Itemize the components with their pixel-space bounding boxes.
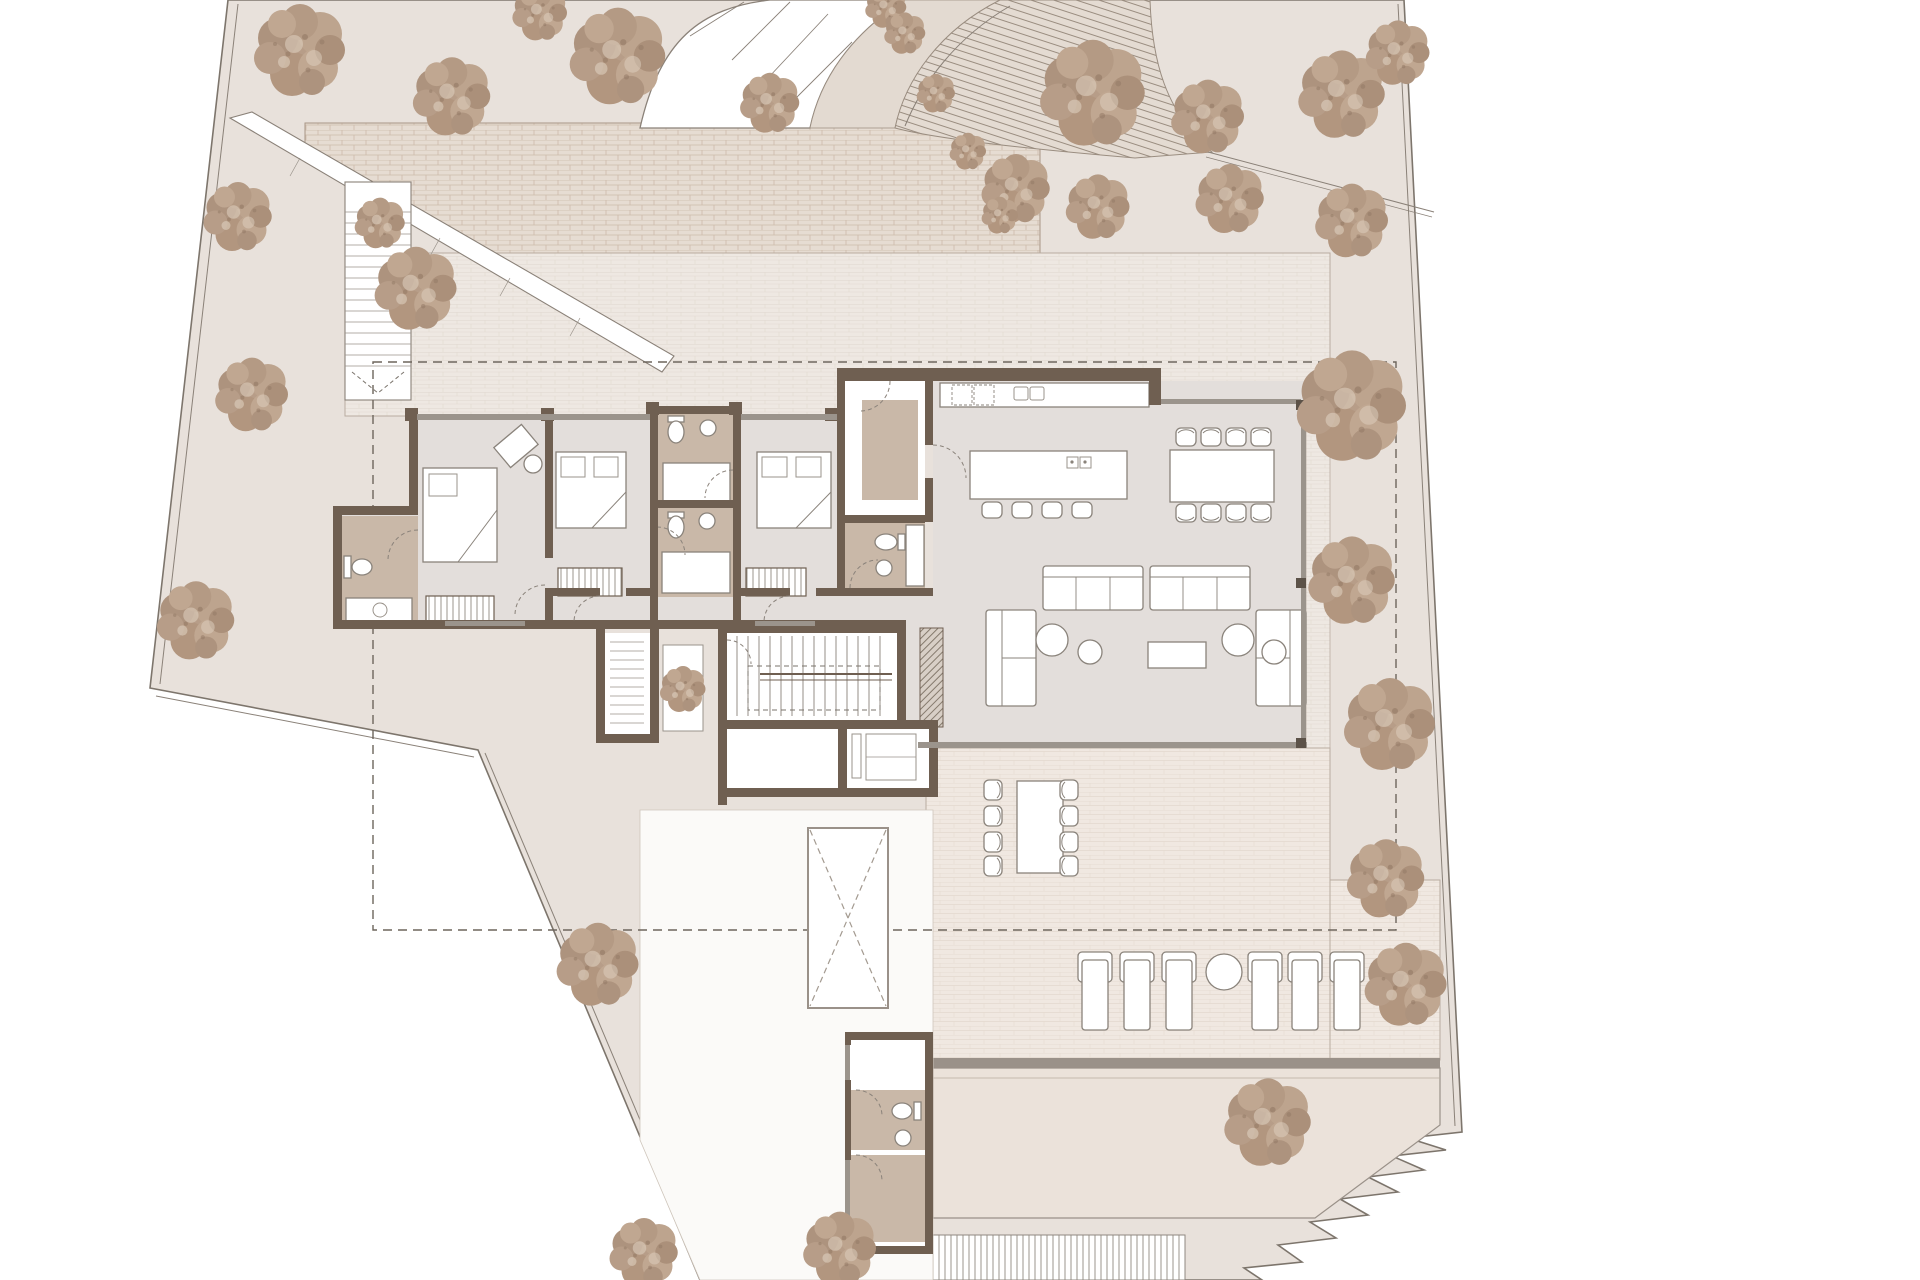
- coffee-table: [1148, 642, 1206, 668]
- pool-house-storage: [849, 1040, 925, 1085]
- sun-lounger: [1288, 952, 1322, 1030]
- column: [1296, 578, 1306, 588]
- island-stool: [1072, 502, 1092, 518]
- window-band: [741, 414, 837, 420]
- closet: [906, 525, 924, 586]
- outdoor-chair: [984, 832, 1002, 852]
- window-band: [1161, 399, 1301, 404]
- bathroom-a: [657, 412, 733, 504]
- kitchen-island: [970, 451, 1127, 499]
- window-band: [445, 621, 525, 626]
- equipment: [852, 734, 861, 778]
- dining-table: [1170, 450, 1274, 502]
- sink-icon: [700, 420, 716, 436]
- bedroom-2: [556, 452, 626, 596]
- toilet-tank: [898, 534, 905, 550]
- shower: [662, 552, 730, 593]
- pouf: [1036, 624, 1068, 656]
- toilet-tank: [914, 1102, 921, 1120]
- wardrobe: [426, 596, 494, 624]
- entry-mat: [862, 400, 918, 500]
- terrace-edge-band: [926, 1058, 1440, 1068]
- fireplace-hatch: [920, 628, 943, 727]
- master-bathroom: [341, 516, 418, 625]
- dining-chair: [1201, 504, 1221, 522]
- toilet-icon: [875, 534, 897, 550]
- utility-room: [847, 729, 929, 788]
- sun-lounger: [1248, 952, 1282, 1030]
- outdoor-chair: [984, 780, 1002, 800]
- chaise-longue: [986, 610, 1036, 706]
- storage-room: [727, 729, 838, 788]
- bed: [556, 452, 626, 528]
- shower: [663, 463, 730, 502]
- outdoor-chair: [984, 856, 1002, 876]
- window-band: [918, 742, 1307, 748]
- dining-chair: [1176, 504, 1196, 522]
- desk-chair: [524, 455, 542, 473]
- kitchen: [940, 383, 1149, 518]
- outdoor-chair: [984, 806, 1002, 826]
- outdoor-chair: [1060, 806, 1078, 826]
- window-band: [755, 621, 815, 626]
- sink-icon: [1014, 387, 1028, 400]
- pillow: [429, 474, 457, 496]
- bed: [757, 452, 831, 528]
- sun-lounger: [1120, 952, 1154, 1030]
- window-band: [1301, 404, 1306, 744]
- pillow: [561, 457, 585, 477]
- floor-plan-drawing: [0, 0, 1920, 1280]
- window: [845, 1045, 850, 1080]
- outdoor-chair: [1060, 856, 1078, 876]
- window-band: [417, 414, 650, 420]
- light-shaft: [808, 828, 888, 1008]
- sun-lounger: [1330, 952, 1364, 1030]
- toilet-icon: [352, 559, 372, 575]
- island-stool: [1042, 502, 1062, 518]
- sink-icon: [373, 603, 387, 617]
- pouf: [1262, 640, 1286, 664]
- pillow: [796, 457, 821, 477]
- sink-icon: [895, 1130, 911, 1146]
- tree: [610, 1218, 678, 1280]
- sink-icon: [699, 513, 715, 529]
- sink-icon: [876, 560, 892, 576]
- toilet-icon: [668, 421, 684, 443]
- dining-chair: [1201, 428, 1221, 446]
- island-stool: [1012, 502, 1032, 518]
- pantry-closet: [604, 633, 650, 734]
- pouf: [1078, 640, 1102, 664]
- powder-room: [845, 523, 925, 588]
- dining-chair: [1176, 428, 1196, 446]
- bathroom-b: [657, 508, 733, 597]
- pillow: [594, 457, 618, 477]
- sink-icon: [1030, 387, 1044, 400]
- outdoor-chair: [1060, 780, 1078, 800]
- outdoor-table: [1017, 781, 1063, 873]
- toilet-tank: [344, 556, 351, 578]
- bed: [423, 468, 497, 562]
- site-plan: [0, 0, 1920, 1280]
- toilet-icon: [892, 1103, 912, 1119]
- pouf: [1222, 624, 1254, 656]
- dining-chair: [1226, 504, 1246, 522]
- sofa: [1043, 566, 1143, 610]
- dining-chair: [1251, 504, 1271, 522]
- dining-chair: [1226, 428, 1246, 446]
- sun-lounger: [1162, 952, 1196, 1030]
- sun-lounger: [1078, 952, 1112, 1030]
- sofa: [1150, 566, 1250, 610]
- island-stool: [982, 502, 1002, 518]
- column: [1296, 738, 1306, 748]
- outdoor-chair: [1060, 832, 1078, 852]
- pillow: [762, 457, 787, 477]
- dining-chair: [1251, 428, 1271, 446]
- lounger-side-table: [1206, 954, 1242, 990]
